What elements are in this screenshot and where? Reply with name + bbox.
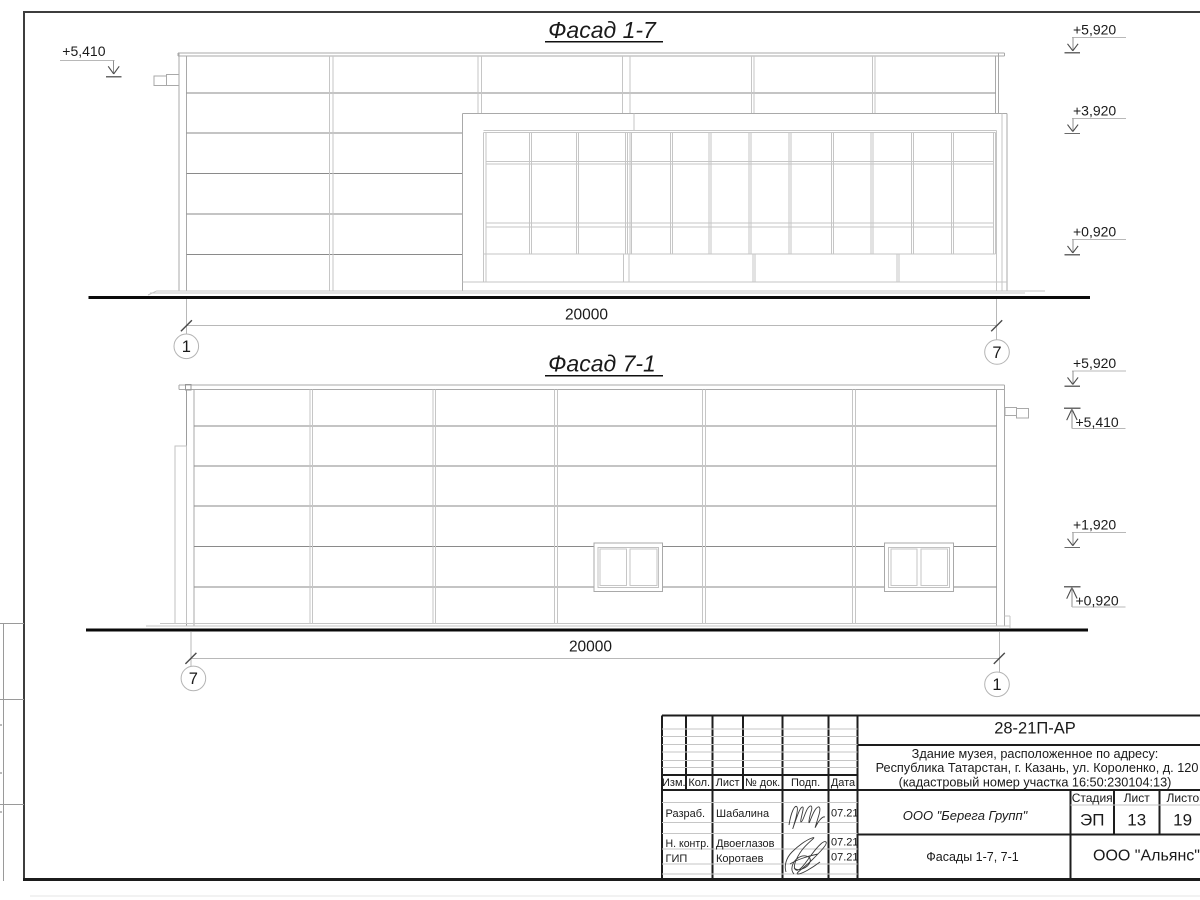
svg-text:Разраб.: Разраб. <box>666 808 706 820</box>
svg-text:7: 7 <box>992 344 1001 362</box>
svg-text:(кадастровый номер участка 16:: (кадастровый номер участка 16:50:230104:… <box>899 776 1172 790</box>
svg-text:№ док.: № док. <box>745 777 780 789</box>
svg-text:7: 7 <box>189 670 198 688</box>
svg-text:Лист: Лист <box>1124 791 1151 805</box>
svg-text:+5,920: +5,920 <box>1073 22 1116 38</box>
svg-text:Фасад 1-7: Фасад 1-7 <box>548 17 657 43</box>
svg-text:1: 1 <box>182 338 191 356</box>
svg-text:Коротаев: Коротаев <box>716 853 764 865</box>
svg-text:ООО "Берега Групп": ООО "Берега Групп" <box>903 808 1029 823</box>
svg-text:07.21: 07.21 <box>831 836 859 848</box>
svg-text:Изм.: Изм. <box>662 777 686 789</box>
svg-text:20000: 20000 <box>565 306 608 323</box>
svg-text:ГИП: ГИП <box>666 853 688 865</box>
svg-text:Подп.: Подп. <box>791 777 820 789</box>
svg-text:Стадия: Стадия <box>1072 791 1113 805</box>
svg-text:+0,920: +0,920 <box>1076 592 1119 608</box>
svg-text:Дата: Дата <box>831 777 856 789</box>
svg-text:1: 1 <box>992 676 1001 694</box>
svg-text:Фасады 1-7, 7-1: Фасады 1-7, 7-1 <box>926 850 1019 864</box>
svg-text:Двоеглазов: Двоеглазов <box>716 838 775 850</box>
svg-text:13: 13 <box>1127 811 1146 830</box>
svg-text:Фасад 7-1: Фасад 7-1 <box>548 351 656 377</box>
svg-text:+5,410: +5,410 <box>62 43 105 59</box>
svg-text:19: 19 <box>1173 811 1192 830</box>
svg-text:ООО "Альянс": ООО "Альянс" <box>1093 847 1200 864</box>
svg-text:Республика Татарстан, г. Казан: Республика Татарстан, г. Казань, ул. Кор… <box>876 761 1199 775</box>
svg-text:Листов: Листов <box>1167 791 1200 805</box>
svg-text:+1,920: +1,920 <box>1073 517 1116 533</box>
svg-text:Здание музея, расположенное по: Здание музея, расположенное по адресу: <box>912 747 1159 761</box>
svg-text:07.21: 07.21 <box>831 851 859 863</box>
svg-text:Н. контр.: Н. контр. <box>666 838 710 850</box>
svg-text:Лист: Лист <box>716 777 740 789</box>
svg-text:ЭП: ЭП <box>1080 811 1104 830</box>
svg-text:+5,920: +5,920 <box>1073 355 1116 371</box>
svg-text:07.21: 07.21 <box>831 808 859 820</box>
svg-text:Шабалина: Шабалина <box>716 808 770 820</box>
svg-text:+5,410: +5,410 <box>1076 414 1119 430</box>
svg-text:+3,920: +3,920 <box>1073 102 1116 118</box>
svg-text:+0,920: +0,920 <box>1073 224 1116 240</box>
svg-text:28-21П-АР: 28-21П-АР <box>994 720 1076 738</box>
svg-text:Кол.: Кол. <box>688 777 710 789</box>
svg-text:20000: 20000 <box>569 639 612 656</box>
